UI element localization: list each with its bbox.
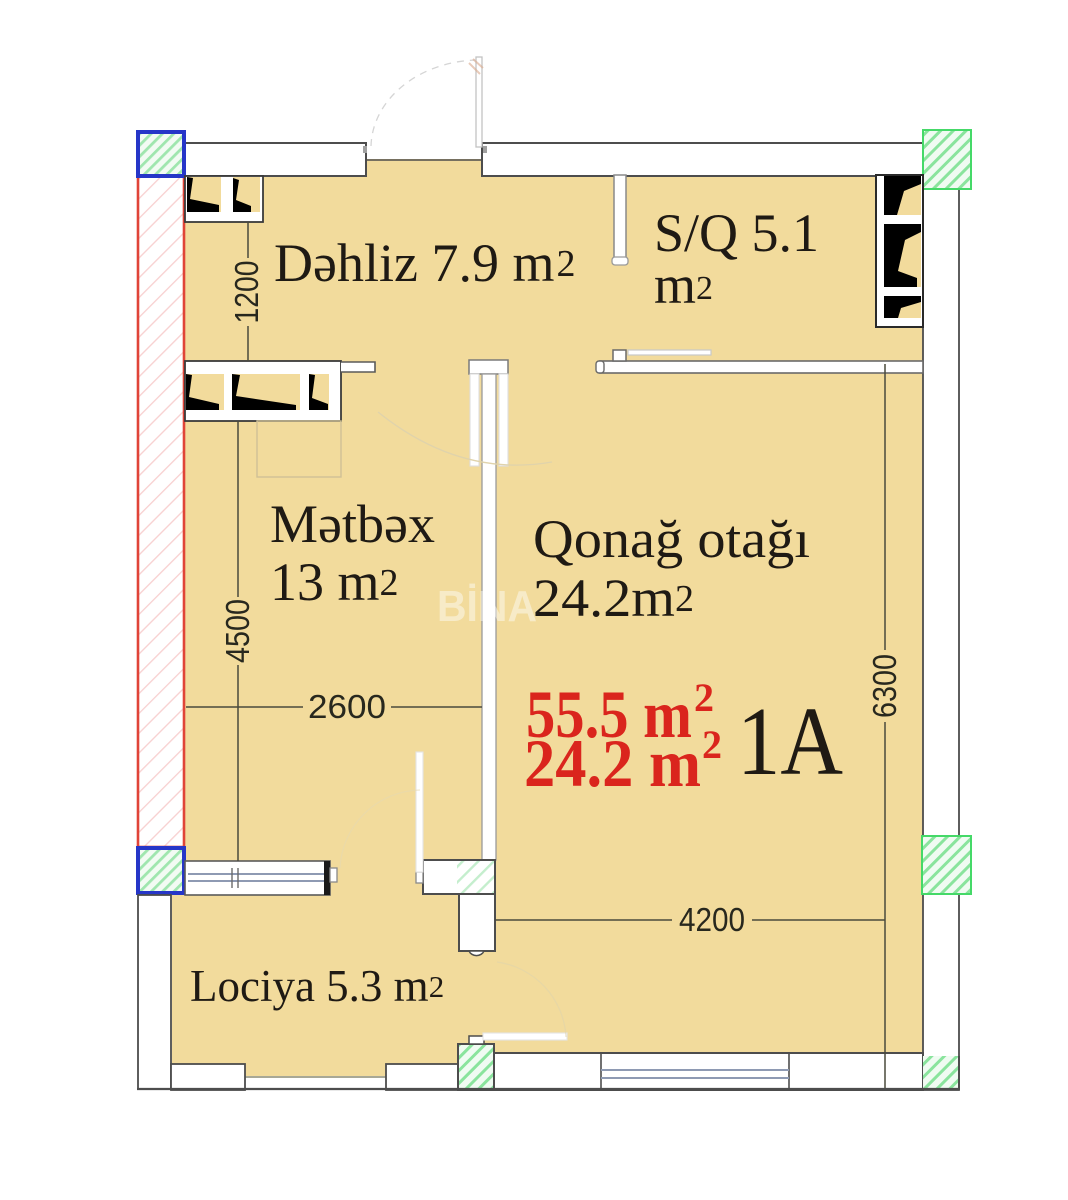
svg-text:2: 2	[702, 722, 722, 767]
svg-text:4200: 4200	[679, 901, 745, 938]
svg-text:BİNA: BİNA	[437, 582, 537, 631]
svg-text:13 m2: 13 m2	[270, 552, 399, 612]
svg-text:1200: 1200	[228, 261, 265, 324]
svg-text:Lociya 5.3 m2: Lociya 5.3 m2	[190, 961, 444, 1011]
svg-text:4500: 4500	[219, 599, 256, 663]
svg-text:24.2m2: 24.2m2	[533, 568, 694, 628]
svg-text:6300: 6300	[866, 654, 903, 718]
svg-text:Mətbəx: Mətbəx	[270, 494, 435, 554]
svg-text:Dəhliz 7.9 m2: Dəhliz 7.9 m2	[274, 233, 575, 293]
svg-text:1A: 1A	[737, 688, 843, 795]
svg-text:S/Q 5.1: S/Q 5.1	[654, 203, 819, 263]
svg-text:Qonağ otağı: Qonağ otağı	[533, 509, 810, 569]
svg-text:24.2 m: 24.2 m	[524, 725, 701, 801]
svg-text:2: 2	[694, 675, 714, 720]
svg-text:2600: 2600	[308, 688, 386, 725]
